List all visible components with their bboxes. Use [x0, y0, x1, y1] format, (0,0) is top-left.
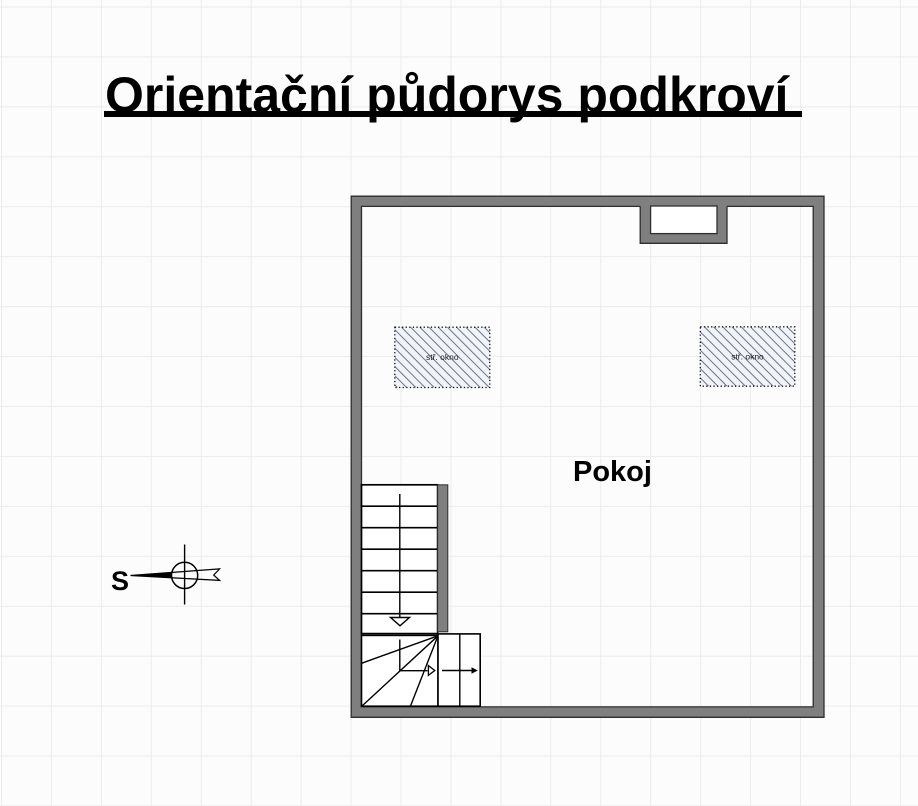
svg-text:stř. okno: stř. okno: [426, 352, 459, 362]
svg-text:stř. okno: stř. okno: [731, 352, 764, 362]
